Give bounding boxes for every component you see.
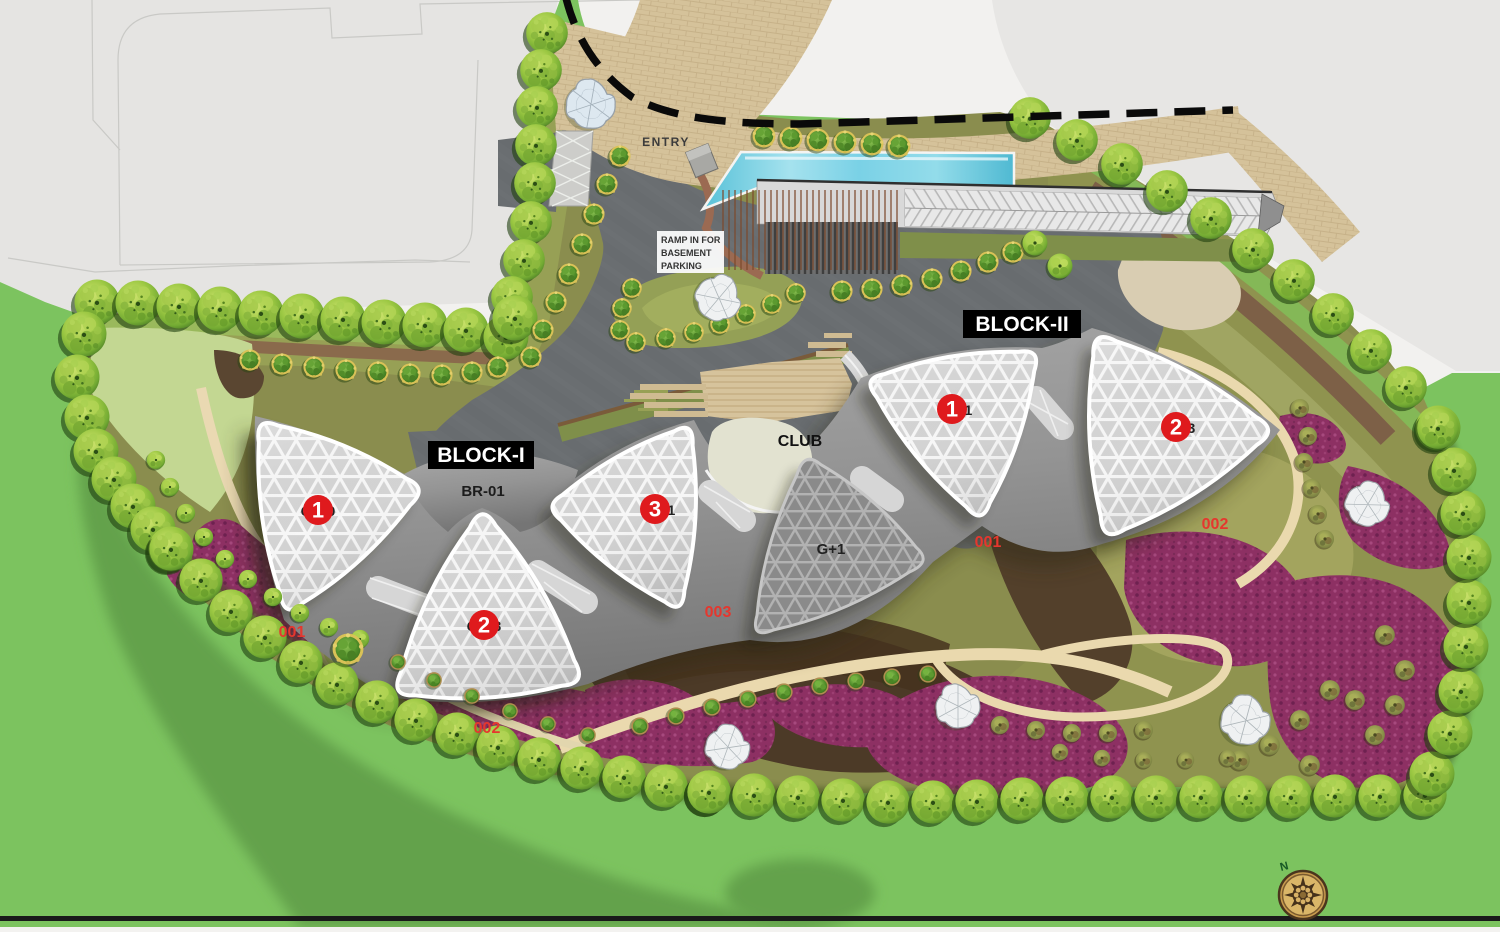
svg-text:001: 001 — [279, 624, 306, 641]
svg-text:002: 002 — [474, 720, 501, 737]
svg-text:RAMP IN FOR: RAMP IN FOR — [661, 235, 721, 245]
svg-text:BR-01: BR-01 — [461, 483, 504, 500]
svg-text:PARKING: PARKING — [661, 261, 702, 271]
svg-text:G+1: G+1 — [817, 541, 846, 558]
svg-text:003: 003 — [705, 604, 732, 621]
svg-text:002: 002 — [1202, 516, 1229, 533]
svg-text:1: 1 — [312, 498, 324, 523]
svg-text:3: 3 — [649, 497, 661, 522]
svg-text:BASEMENT: BASEMENT — [661, 248, 712, 258]
svg-text:BLOCK-II: BLOCK-II — [975, 313, 1068, 336]
svg-text:CLUB: CLUB — [778, 433, 822, 450]
svg-text:2: 2 — [478, 613, 490, 638]
svg-text:ENTRY: ENTRY — [642, 135, 690, 149]
svg-text:2: 2 — [1170, 415, 1182, 440]
svg-text:001: 001 — [975, 534, 1002, 551]
svg-text:BLOCK-I: BLOCK-I — [437, 444, 525, 467]
svg-text:1: 1 — [946, 397, 958, 422]
